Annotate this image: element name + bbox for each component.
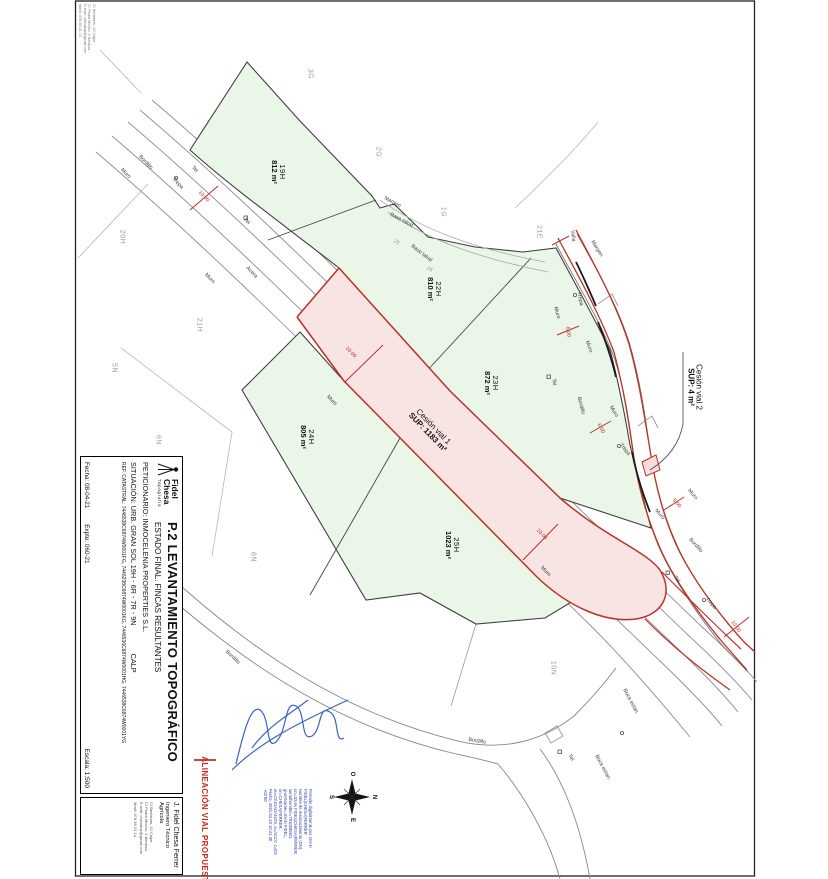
ref-catastral-value: 7446538C6874W0001FG, 7446238C6874W0001KG… <box>120 506 126 743</box>
peticionario-row: PETICIONARIO: INMOCELENIA PROPERTIES S.L… <box>141 462 150 788</box>
ref-catastral-label: REF. CATASTRAL: <box>120 462 126 504</box>
situacion-value: URB. GRAN SOL 19H - 6R - 7R - 9N <box>129 506 138 626</box>
logo-name-line1: Fidel <box>171 479 179 507</box>
ref-catastral-row: REF. CATASTRAL: 7446538C6874W0001FG, 744… <box>120 462 126 788</box>
tripod-logo-icon <box>157 462 179 477</box>
logo-name-line2: Chesa <box>162 479 170 507</box>
professional-contact-line: C/ Pedra Mocho, 3 Benissa <box>144 802 149 870</box>
cession-2-sliver <box>642 455 660 476</box>
situacion-label: SITUACIÓN: <box>129 462 138 504</box>
expte-value: 060-21 <box>83 544 90 564</box>
professional-title: Ingeniero Técnico Agrícola <box>158 802 170 870</box>
compass-west-label: O <box>349 772 355 777</box>
title-block-footer: Fecha: 08-04-21 Expte: 060-21 Escala: 1:… <box>83 462 90 788</box>
fecha-value: 08-04-21 <box>83 483 90 508</box>
company-logo: Fidel Chesa Topografía <box>157 462 180 518</box>
escala-value: 1:500 <box>83 772 90 788</box>
cession-2-leader <box>650 352 683 470</box>
plan-subtitle: ESTADO FINAL. FINCAS RESULTANTES <box>153 522 162 788</box>
title-block-main: Fidel Chesa Topografía P.2 LEVANTAMIENTO… <box>80 456 183 794</box>
digital-signature-line: ou=CIUDADANOS, o=ACCV, c=ES <box>272 789 277 855</box>
corner-contact-line: C/ Benidorm, 10 Calpe <box>91 4 96 62</box>
escala-label: Escala: <box>83 749 90 770</box>
compass-north-label: N <box>371 795 377 799</box>
corner-contact-block: C/ Benidorm, 10 CalpeC/ Pedra Mocho, 3 B… <box>78 4 96 62</box>
compass-east-label: E <box>349 818 355 822</box>
compass-rose <box>334 779 370 815</box>
expte-label: Expte: <box>83 524 90 542</box>
fecha-label: Fecha: <box>83 462 90 481</box>
compass-south-label: S <box>328 795 334 799</box>
professional-contact: C/ Benidorm, 10 CalpeC/ Pedra Mocho, 3 B… <box>133 802 154 870</box>
digital-signature-text: Firmado digitalmente por JOANFIDEL|CHESA… <box>262 789 312 855</box>
professional-name: J. Fidel Chesa Ferrer <box>172 802 179 870</box>
title-block: Fidel Chesa Topografía P.2 LEVANTAMIENTO… <box>80 456 183 875</box>
municipio-value: CALP <box>129 654 138 673</box>
digital-signature-line: sn=CHESA|FERRER, <box>277 789 282 855</box>
legend-alignment-label: ALINEACIÓN VIAL PROPUESTA <box>200 756 208 879</box>
corner-contact-line: C/ Pedra Mocho, 3 Benissa <box>87 4 92 62</box>
survey-plan-sheet: 19H812 m²22H810 m²23H872 m²24H805 m²25H1… <box>0 0 828 879</box>
corner-contact-line: E-mail: chesatop@gmail.com <box>82 4 87 62</box>
plan-title: P.2 LEVANTAMIENTO TOPOGRÁFICO <box>165 522 180 788</box>
peticionario-value: INMOCELENIA PROPERTIES S.L. <box>141 518 150 632</box>
logo-tagline: Topografía <box>157 479 161 507</box>
digital-signature-line: givenName=JOAN FIDEL, <box>282 789 287 855</box>
professional-contact-line: C/ Benidorm, 10 Calpe <box>149 802 154 870</box>
peticionario-label: PETICIONARIO: <box>141 462 150 516</box>
professional-block: J. Fidel Chesa Ferrer Ingeniero Técnico … <box>80 797 183 875</box>
signature-scribble <box>232 700 348 770</box>
professional-contact-line: E-mail: chesatop@gmail.com <box>138 802 143 870</box>
professional-contact-line: Móvil: 678 69 21 14 <box>133 802 138 870</box>
situacion-row: SITUACIÓN: URB. GRAN SOL 19H - 6R - 7R -… <box>129 462 138 788</box>
